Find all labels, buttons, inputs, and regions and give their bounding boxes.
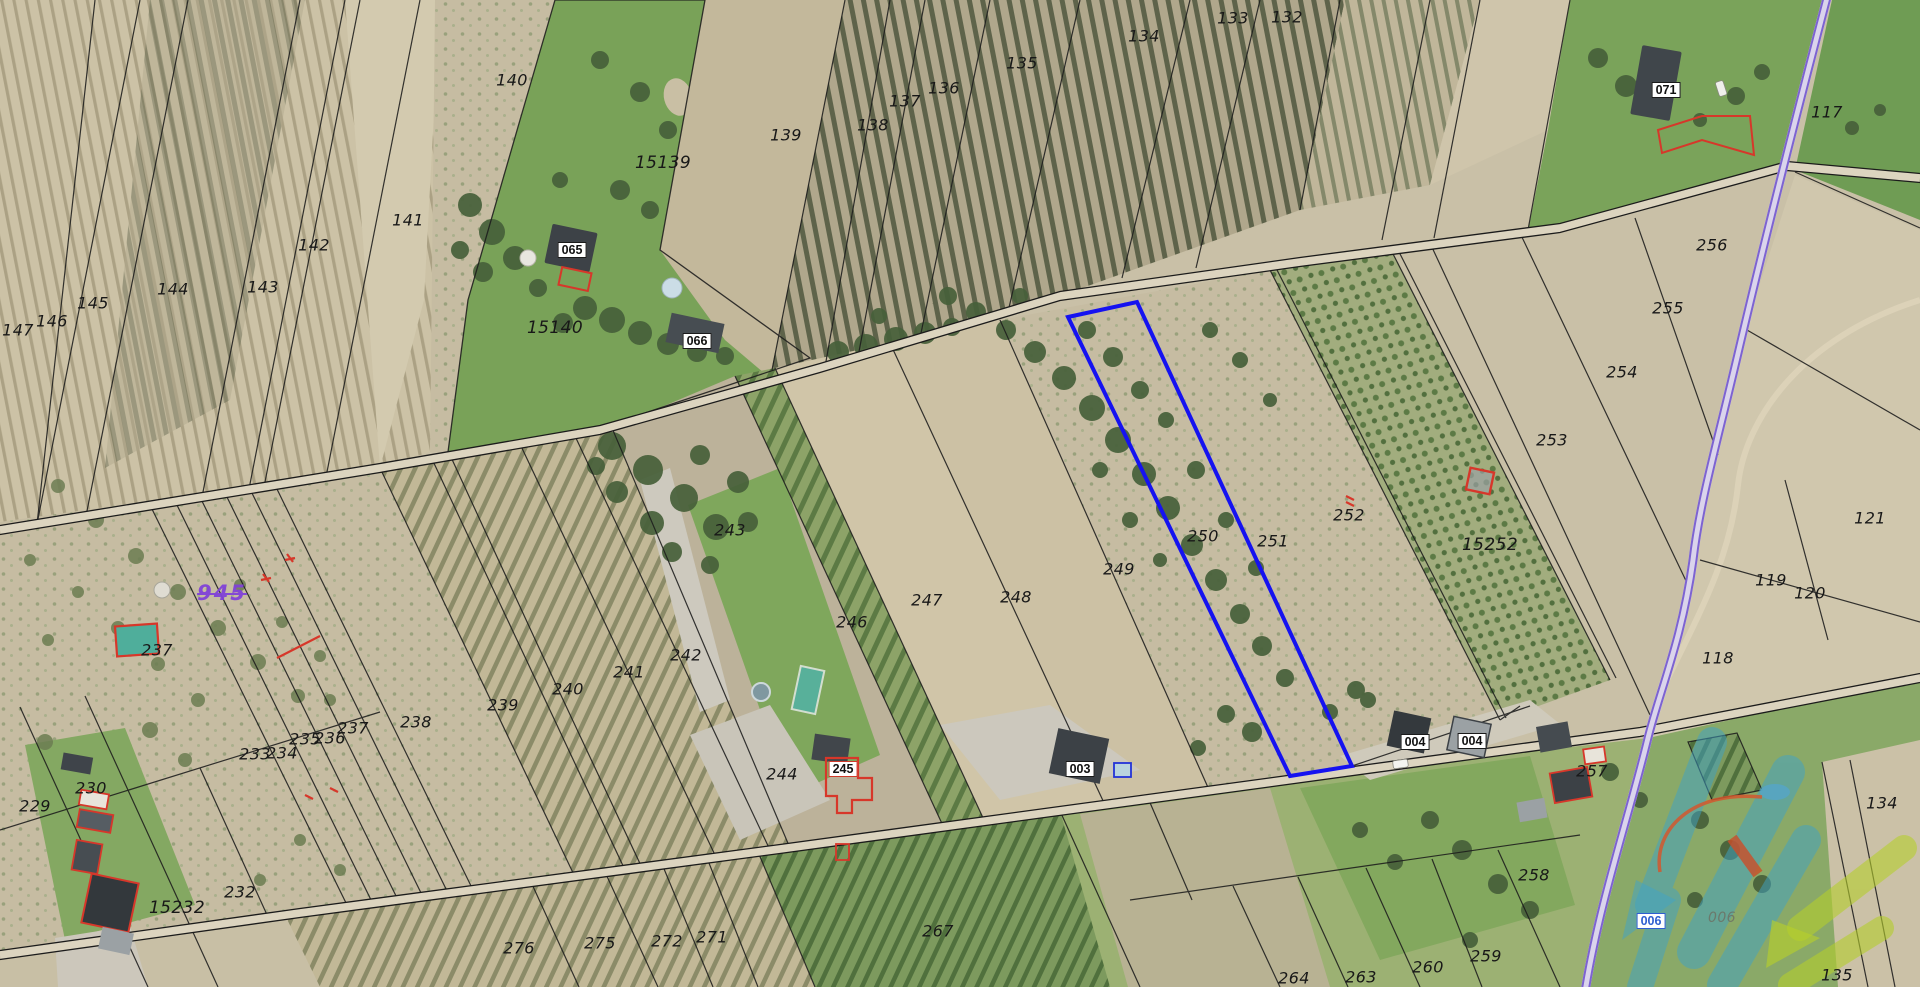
map-canvas [0, 0, 1920, 987]
cadastral-map-viewport[interactable]: 1401411421431441451461471513915140139138… [0, 0, 1920, 987]
